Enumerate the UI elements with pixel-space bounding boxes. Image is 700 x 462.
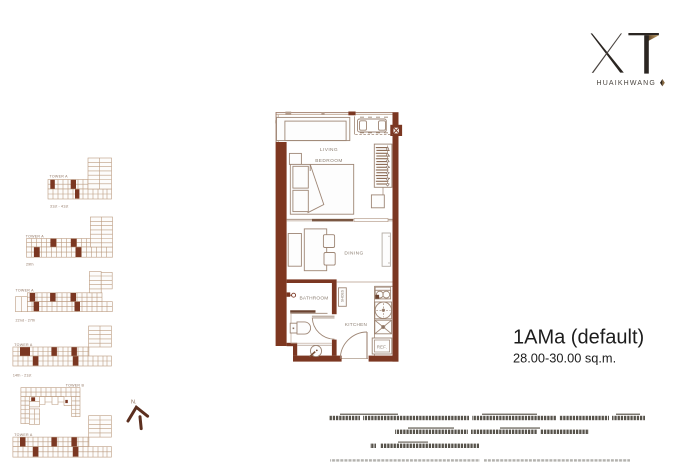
svg-text:TOWER A: TOWER A: [26, 234, 45, 238]
svg-text:REF.: REF.: [377, 345, 387, 350]
svg-text:TOWER A: TOWER A: [50, 175, 69, 179]
svg-text:1AMa (default): 1AMa (default): [513, 327, 644, 349]
svg-text:DINING: DINING: [344, 251, 363, 257]
svg-text:TOWER A: TOWER A: [14, 433, 33, 437]
svg-text:TOWER B: TOWER B: [66, 384, 85, 388]
svg-text:29th: 29th: [26, 263, 34, 267]
svg-text:SHOES: SHOES: [340, 289, 344, 302]
svg-text:28.00-30.00 sq.m.: 28.00-30.00 sq.m.: [513, 351, 616, 366]
svg-text:KITCHEN: KITCHEN: [345, 322, 367, 327]
svg-text:N.: N.: [131, 400, 137, 406]
svg-text:LIVING: LIVING: [320, 147, 338, 153]
svg-text:BEDROOM: BEDROOM: [315, 158, 343, 164]
svg-text:BATHROOM: BATHROOM: [300, 296, 329, 302]
svg-text:HUAIKHWANG: HUAIKHWANG: [597, 80, 656, 87]
svg-text:TOWER A: TOWER A: [14, 343, 33, 347]
svg-text:31st - 41st: 31st - 41st: [50, 205, 68, 209]
svg-text:14th - 21st: 14th - 21st: [13, 374, 32, 378]
svg-text:22nd - 27th: 22nd - 27th: [16, 319, 36, 323]
svg-text:TOWER A: TOWER A: [16, 289, 35, 293]
